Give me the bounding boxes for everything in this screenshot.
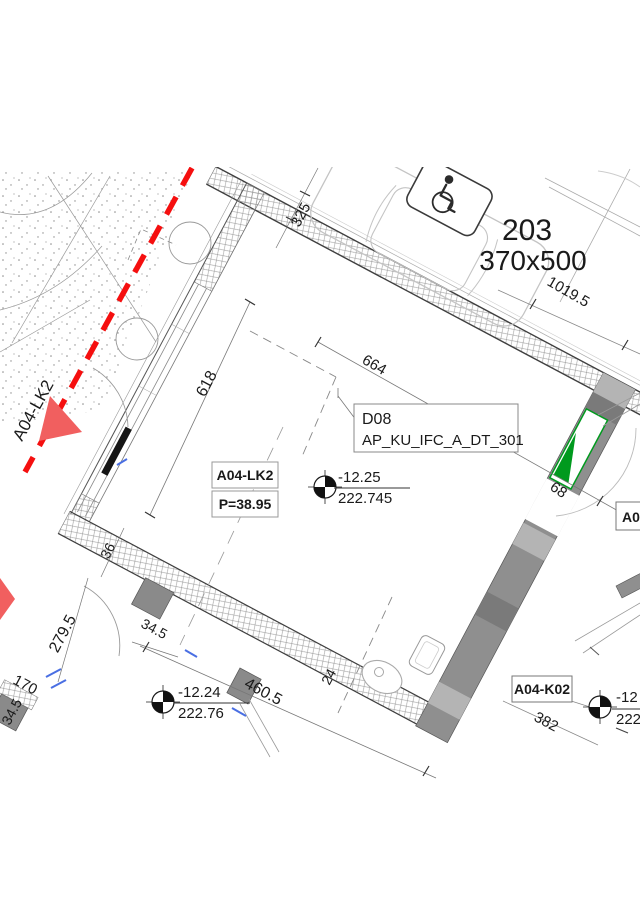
bottom-room-tag-box: A04-K02 — [512, 676, 572, 702]
adjacent-room-tag-box: A04 — [616, 502, 640, 530]
level-absolute: 222 — [616, 711, 640, 728]
floor-plan-page: A04-LK2 618 664 325 1019.5 68 36 34.5 — [0, 0, 640, 905]
door-tag-code: AP_KU_IFC_A_DT_301 — [362, 432, 524, 449]
level-absolute: 222.76 — [178, 705, 224, 722]
parking-size: 370x500 — [479, 245, 586, 276]
level-relative: -12.24 — [178, 684, 221, 701]
door-tag-id: D08 — [362, 411, 391, 428]
adjacent-room-tag: A04 — [622, 509, 640, 525]
floor-plan-svg: A04-LK2 618 664 325 1019.5 68 36 34.5 — [0, 0, 640, 905]
room-tag: A04-LK2 — [217, 467, 274, 483]
level-relative: -12.25 — [338, 469, 381, 486]
room-area: P=38.95 — [219, 496, 272, 512]
parking-number: 203 — [502, 214, 552, 247]
level-absolute: 222.745 — [338, 490, 392, 507]
level-relative: -12 — [616, 689, 638, 706]
paper-background — [0, 0, 640, 905]
bottom-room-tag: A04-K02 — [514, 681, 570, 697]
